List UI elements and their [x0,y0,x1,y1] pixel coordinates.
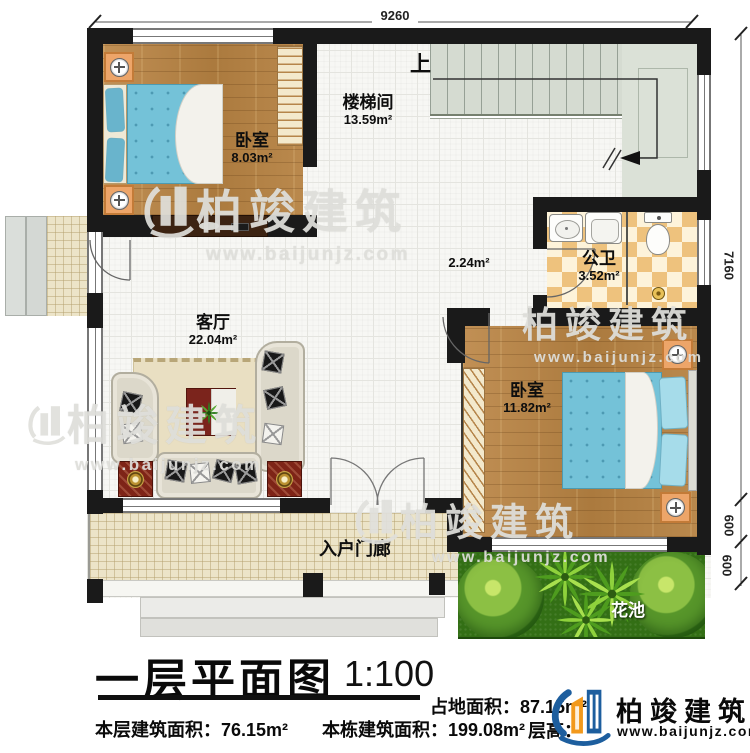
window [697,75,711,170]
entry-step [140,618,438,637]
window [123,498,280,513]
wall-segment [103,498,123,513]
tv-cabinet [152,215,268,237]
room-name: 卧室 [475,381,579,401]
cushion [234,461,257,484]
lamp-icon [668,345,687,364]
dimension-height: 7160 [722,245,737,287]
scale-label: 1:100 [344,653,434,695]
cushion [262,423,285,446]
window [133,28,273,44]
building-area-stat: 本栋建筑面积：199.08m² [322,716,525,742]
stairs-up-label: 上 [410,53,431,77]
porch-column [87,579,103,603]
cushion [121,422,144,445]
nightstand [660,492,691,523]
room-label-bathroom: 公卫 3.52m² [557,249,641,283]
cushion [261,350,284,373]
room-area: 13.59m² [320,113,416,128]
brand-building-icon [25,398,67,448]
porch-column [429,573,445,595]
dimension-segment: 600 [720,549,735,583]
wall-segment [447,312,465,363]
room-name: 客厅 [160,313,266,333]
wall-segment [533,295,547,308]
room-label-bedroom2: 卧室 11.82m² [475,381,579,415]
wall-segment [303,44,317,167]
wall-segment [533,212,547,249]
room-area: 11.82m² [475,401,579,416]
wall-segment [667,537,711,552]
brand-logo-icon [548,682,614,748]
cushion [119,391,143,415]
wall-segment [273,28,711,44]
nightstand [662,339,693,370]
wall-segment [87,28,133,44]
nightstand [104,185,134,215]
window [697,220,711,285]
porch-edge [87,580,480,597]
end-table [118,461,153,497]
title-underline [98,695,420,700]
porch-column [303,573,323,597]
room-label-bedroom1: 卧室 8.03m² [200,131,304,165]
floor-plan-page: 卧室 8.03m² 楼梯间 13.59m² 上 2.24m² 公卫 3.52m²… [0,0,750,753]
room-label-stairwell: 楼梯间 13.59m² [320,93,416,127]
table-lamp-icon [276,471,293,488]
pillow [659,376,689,429]
room-area: 8.03m² [200,151,304,166]
potted-plant-icon [196,400,222,426]
cushion [189,462,211,484]
side-platform-tile [47,216,87,316]
window [87,328,103,490]
wall-segment [103,215,152,237]
pillow [105,88,125,133]
room-label-living: 客厅 22.04m² [160,313,266,347]
sink-drain [565,227,568,230]
sofa-left [111,372,159,464]
lamp-icon [110,58,129,77]
decor-plate [199,222,219,230]
brand-url: www.baijunjz.com [617,723,750,739]
washer-drum [591,219,619,243]
brand-logo: 柏竣建筑 www.baijunjz.com [548,682,748,752]
stair-landing-platform [638,68,688,158]
hall-area-label: 2.24m² [425,256,513,271]
stair-treads [430,44,622,114]
cushion [263,386,287,410]
wall-segment [268,215,317,237]
pillow [105,138,125,183]
lamp-icon [666,498,685,517]
dimension-width: 9260 [372,8,418,23]
wall-segment [87,490,103,514]
window [87,232,103,293]
stair-rail [430,114,622,119]
floor-drain-icon [652,287,665,300]
wall-segment [280,498,330,513]
nightstand [104,52,134,82]
wall-segment [533,197,697,212]
room-label-porch: 入户门廊 [292,539,418,560]
room-name: 楼梯间 [320,93,416,113]
wall-segment [528,308,711,326]
porch-edge-line [88,514,90,580]
room-name: 卧室 [200,131,304,151]
wall-segment [425,498,458,513]
pillow [659,433,689,486]
side-platform-panel [5,216,26,316]
wall-segment [87,44,103,232]
room-area: 22.04m² [160,333,266,348]
room-area: 3.52m² [557,269,641,284]
flower-bed [458,552,705,639]
end-table [267,461,302,497]
toilet-button [657,216,661,220]
toilet-bowl [646,224,670,255]
room-name: 公卫 [557,249,641,269]
remote-control [231,223,249,231]
wall-segment [697,170,711,220]
washing-machine [585,212,622,244]
entry-step [140,597,445,618]
bed-headboard [688,370,697,491]
toilet-tank [644,212,672,223]
side-platform-panel [26,216,47,316]
room-label-flowerbed: 花池 [602,601,654,621]
dimension-segment: 600 [722,509,737,543]
lamp-icon [110,191,129,210]
bathroom-sink [549,214,583,242]
wall-segment [447,537,492,552]
cushion [164,459,187,482]
floor-area-stat: 本层建筑面积：76.15m² [95,716,288,742]
wall-segment [87,293,103,328]
window [492,537,667,552]
wall-segment [697,44,711,75]
table-lamp-icon [127,471,144,488]
